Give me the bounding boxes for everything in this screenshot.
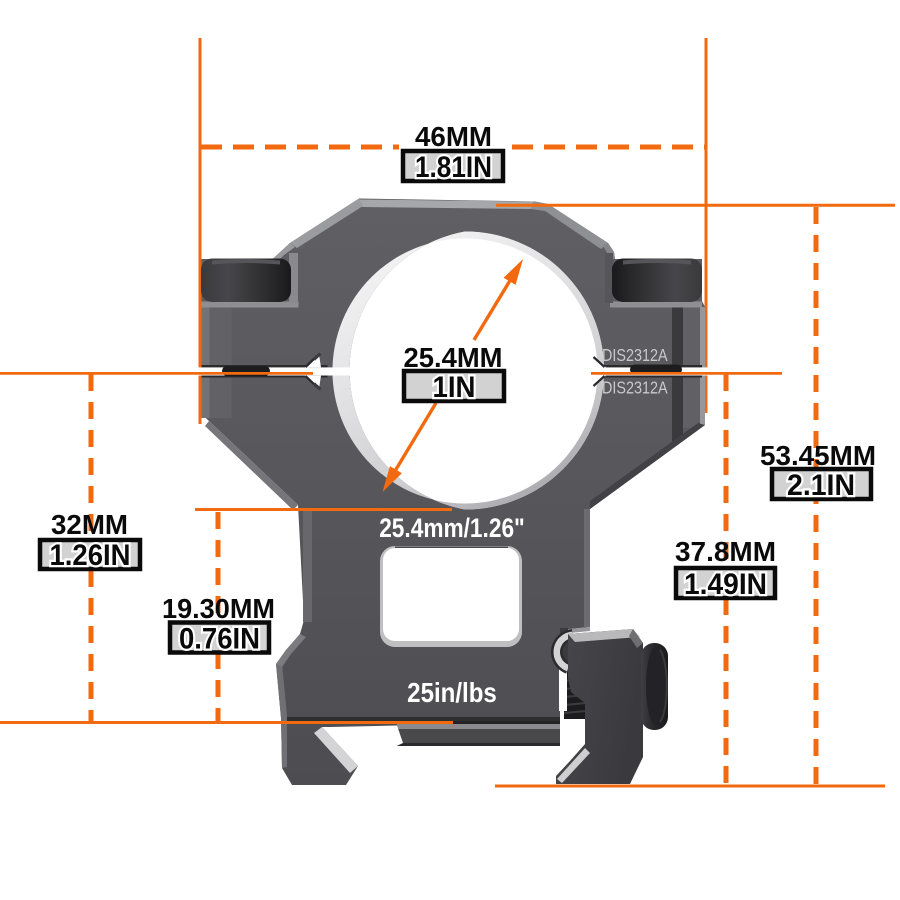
svg-text:2.1IN: 2.1IN [787, 469, 855, 502]
svg-text:46MM: 46MM [415, 121, 492, 152]
svg-text:25.4mm/1.26": 25.4mm/1.26" [379, 513, 525, 543]
svg-text:DIS2312A: DIS2312A [602, 346, 668, 366]
svg-text:32MM: 32MM [51, 509, 128, 540]
svg-text:1.81IN: 1.81IN [415, 151, 492, 184]
svg-text:25in/lbs: 25in/lbs [407, 676, 497, 708]
svg-text:DIS2312A: DIS2312A [602, 378, 668, 398]
svg-text:1.26IN: 1.26IN [50, 539, 131, 572]
svg-text:37.8MM: 37.8MM [675, 536, 776, 567]
svg-text:1.49IN: 1.49IN [684, 568, 767, 601]
svg-text:53.45MM: 53.45MM [760, 440, 876, 471]
svg-text:1IN: 1IN [433, 371, 476, 404]
svg-text:0.76IN: 0.76IN [179, 623, 260, 656]
svg-text:25.4MM: 25.4MM [404, 342, 503, 373]
svg-text:19.30MM: 19.30MM [162, 593, 275, 624]
